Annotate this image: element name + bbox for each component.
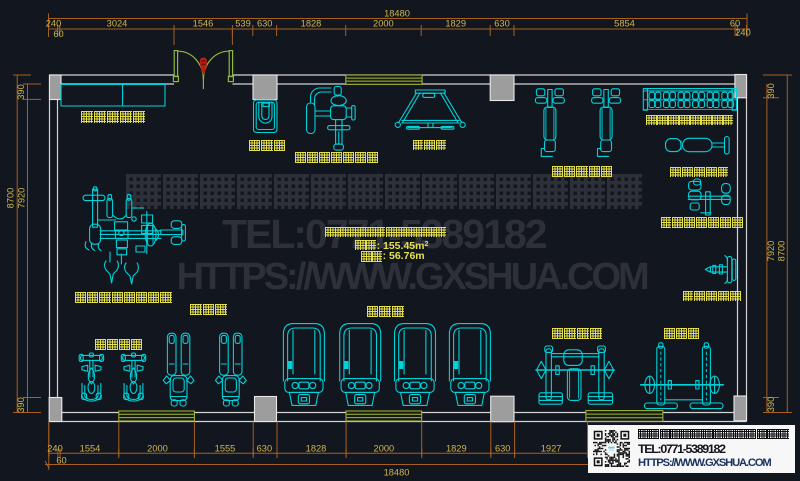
svg-text:18480: 18480 (384, 468, 410, 478)
svg-text:630: 630 (257, 19, 273, 29)
svg-text:60: 60 (56, 456, 66, 466)
svg-text:60: 60 (53, 29, 63, 39)
svg-text:390: 390 (16, 84, 26, 100)
svg-text:2000: 2000 (374, 444, 395, 454)
svg-text:7920: 7920 (17, 188, 27, 209)
svg-text:539: 539 (235, 19, 251, 29)
svg-text:630: 630 (257, 444, 273, 454)
svg-text:240: 240 (735, 28, 751, 38)
svg-text:1829: 1829 (445, 19, 466, 29)
svg-text:1828: 1828 (301, 19, 322, 29)
svg-text:1554: 1554 (80, 444, 101, 454)
svg-text:390: 390 (766, 397, 776, 413)
svg-text:2000: 2000 (147, 444, 168, 454)
svg-text:630: 630 (495, 444, 511, 454)
svg-text:390: 390 (766, 83, 776, 99)
svg-text:1546: 1546 (193, 19, 214, 29)
svg-text:1828: 1828 (306, 444, 327, 454)
svg-text:8700: 8700 (777, 241, 787, 262)
svg-text:1927: 1927 (541, 444, 562, 454)
svg-text:240: 240 (47, 444, 63, 454)
svg-text:3024: 3024 (107, 19, 128, 29)
svg-text:1829: 1829 (446, 444, 467, 454)
svg-text:5854: 5854 (614, 19, 635, 29)
svg-text:390: 390 (16, 397, 26, 413)
svg-text:7920: 7920 (766, 241, 776, 262)
svg-text:1555: 1555 (215, 444, 236, 454)
svg-text:240: 240 (46, 19, 62, 29)
svg-text:18480: 18480 (384, 9, 410, 19)
svg-text:2000: 2000 (373, 19, 394, 29)
svg-text:8700: 8700 (6, 188, 16, 209)
svg-text:630: 630 (494, 19, 510, 29)
